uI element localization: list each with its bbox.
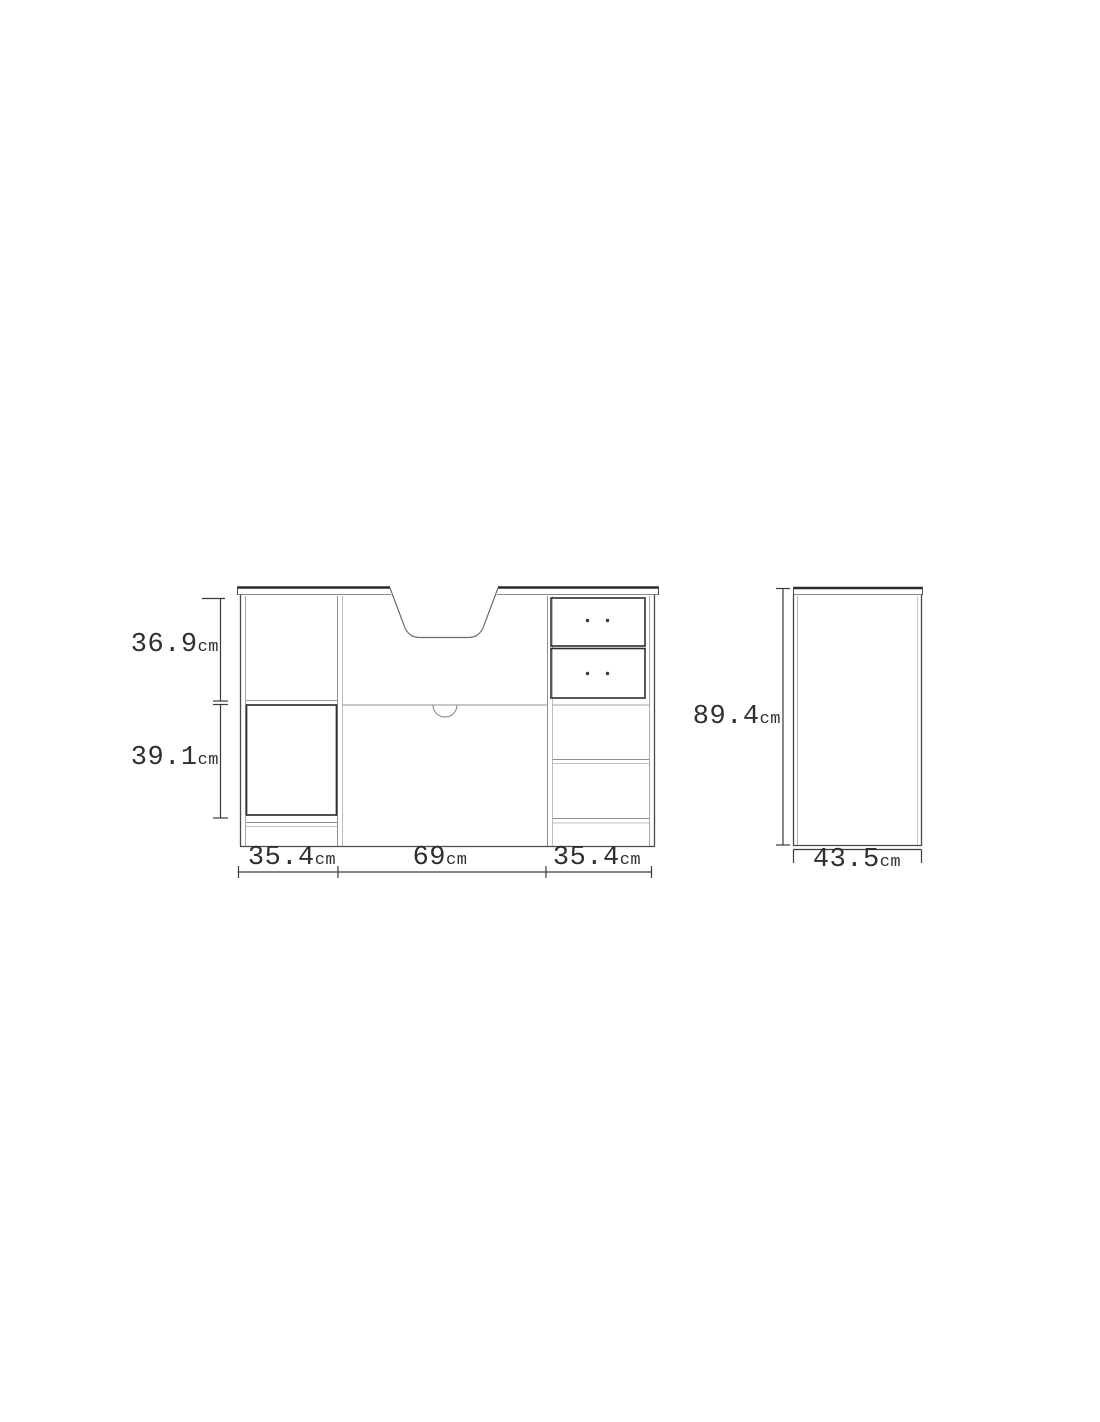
side-depth-label: 43.5cm: [787, 847, 927, 874]
right-drawer-1: [551, 598, 645, 646]
dim-unit: cm: [315, 851, 336, 870]
dim-value: 35.4: [553, 843, 620, 873]
front-dim-lines: [202, 598, 652, 878]
front-left-width-label: 35.4cm: [222, 845, 362, 872]
side-view: [776, 587, 923, 863]
front-lower-height-label: 39.1cm: [79, 745, 219, 772]
front-right-width-label: 35.4cm: [527, 845, 667, 872]
side-height-label: 89.4cm: [641, 704, 781, 731]
dim-unit: cm: [198, 751, 219, 770]
front-upper-height-label: 36.9cm: [79, 632, 219, 659]
side-panel: [793, 595, 922, 846]
front-view: [202, 587, 659, 878]
dim-unit: cm: [620, 851, 641, 870]
right-shelves: [553, 705, 650, 823]
right-drawer-2: [551, 649, 645, 699]
front-carcass: [240, 595, 655, 847]
dim-value: 36.9: [131, 630, 198, 660]
center-drawer-front: [343, 705, 548, 717]
left-door: [247, 705, 337, 815]
dim-value: 39.1: [131, 743, 198, 773]
dim-value: 89.4: [693, 702, 760, 732]
drawing-area: 36.9cm 39.1cm 35.4cm 69cm 35.4cm 89.4cm …: [0, 0, 1100, 1422]
dim-value: 35.4: [248, 843, 315, 873]
dim-unit: cm: [198, 638, 219, 657]
technical-drawing: [0, 0, 1100, 1422]
front-center-width-label: 69cm: [370, 845, 510, 872]
dim-unit: cm: [446, 851, 467, 870]
front-countertop: [237, 587, 659, 595]
dim-unit: cm: [880, 853, 901, 872]
dim-unit: cm: [760, 710, 781, 729]
sink-basin-outline: [390, 588, 498, 638]
dim-value: 69: [413, 843, 446, 873]
dim-value: 43.5: [813, 845, 880, 875]
center-drawer-handle-notch: [433, 705, 457, 717]
side-countertop: [793, 587, 923, 595]
left-plinth-lines: [246, 823, 337, 827]
drawer-handle-dots: [586, 619, 609, 675]
